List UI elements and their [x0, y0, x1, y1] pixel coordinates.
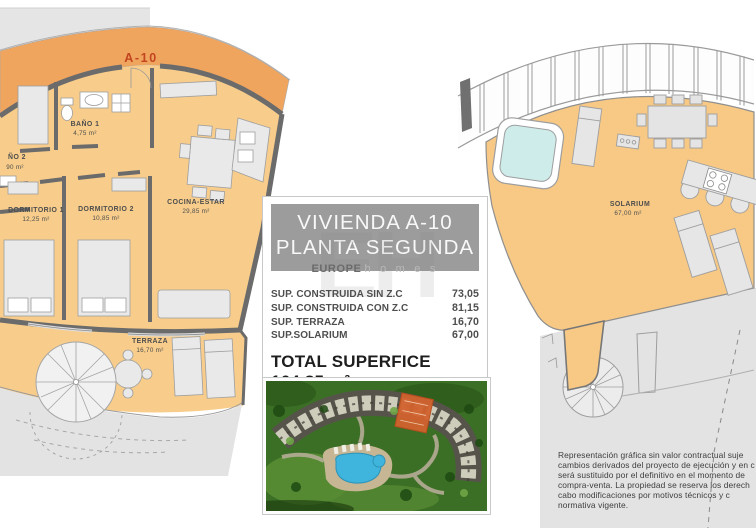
info-panel: EH VIVIENDA A-10 PLANTA SEGUNDA EUROPEh … — [262, 196, 488, 402]
measurement-row: SUP. CONSTRUIDA CON Z.C 81,15 — [271, 302, 479, 316]
brochure-page: { "left_plan": { "unit_marker": "A-10", … — [0, 0, 756, 528]
room-label: BAÑO 1 — [71, 119, 100, 128]
right-floor-plan: SOLARIUM 67,00 m² — [456, 0, 756, 528]
room-label: ÑO 2 — [8, 152, 26, 161]
measurement-label: SUP.SOLARIUM — [271, 330, 348, 343]
measurement-value: 67,00 — [452, 329, 479, 342]
room-area: 4,75 m² — [73, 130, 96, 137]
room-area: 90 m² — [6, 164, 24, 171]
measurements-list: SUP. CONSTRUIDA SIN Z.C 73,05 SUP. CONST… — [271, 288, 479, 343]
disclaimer-line: normativa vigente. — [558, 501, 756, 511]
measurement-value: 81,15 — [452, 302, 479, 315]
brand-watermark-light: h o m e s — [365, 263, 439, 275]
measurement-label: SUP. CONSTRUIDA SIN Z.C — [271, 289, 403, 302]
measurement-row: SUP. CONSTRUIDA SIN Z.C 73,05 — [271, 288, 479, 302]
aerial-photo-render — [266, 381, 487, 511]
room-label: COCINA-ESTAR — [167, 199, 225, 206]
room-label: TERRAZA — [132, 338, 168, 345]
room-area: 10,85 m² — [92, 215, 119, 222]
room-area: 12,25 m² — [22, 216, 49, 223]
brand-watermark: EUROPEh o m e s — [263, 259, 487, 277]
jacuzzi-icon — [491, 116, 566, 191]
room-area: 16,70 m² — [136, 347, 163, 354]
brand-watermark-bold: EUROPE — [311, 263, 361, 275]
disclaimer-line: Representación gráfica sin valor contrac… — [558, 451, 756, 461]
aerial-photo — [263, 378, 490, 514]
room-label: DORMITORIO 1 — [8, 207, 64, 214]
measurement-value: 73,05 — [452, 288, 479, 301]
room-area: 67,00 m² — [614, 210, 641, 217]
disclaimer-line: será sustituido por el definitivo en el … — [558, 471, 756, 481]
measurement-row: SUP. TERRAZA 16,70 — [271, 316, 479, 330]
total-label: TOTAL SUPERFICE — [271, 352, 479, 372]
room-label: SOLARIUM — [610, 201, 650, 208]
disclaimer-text: Representación gráfica sin valor contrac… — [558, 451, 756, 510]
disclaimer-line: cambios derivados del proyecto de ejecuc… — [558, 461, 756, 471]
panel-title-line1: VIVIENDA A-10 — [271, 210, 479, 235]
measurement-value: 16,70 — [452, 316, 479, 329]
room-label: DORMITORIO 2 — [78, 206, 134, 213]
disclaimer-line: cabo modificaciones por motivos técnicos… — [558, 491, 756, 501]
measurement-label: SUP. TERRAZA — [271, 317, 345, 330]
left-floor-plan: A-10 — [0, 0, 290, 490]
unit-marker-label: A-10 — [124, 51, 158, 65]
room-area: 29,85 m² — [182, 208, 209, 215]
highlighted-unit — [395, 393, 433, 433]
measurement-row: SUP.SOLARIUM 67,00 — [271, 329, 479, 343]
panel-title-line2: PLANTA SEGUNDA — [271, 235, 479, 260]
measurement-label: SUP. CONSTRUIDA CON Z.C — [271, 303, 408, 316]
disclaimer-line: compra-venta. La propiedad se reserva lo… — [558, 481, 756, 491]
